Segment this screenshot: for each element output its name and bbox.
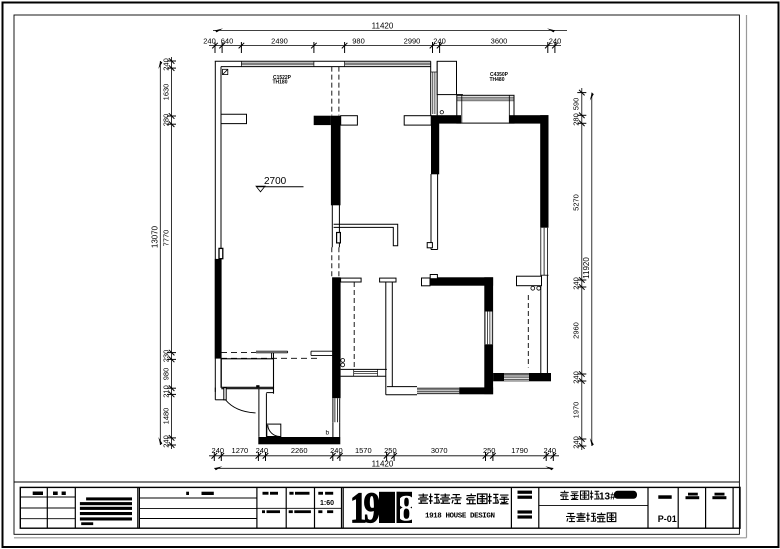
svg-text:7770: 7770 <box>162 230 171 247</box>
svg-text:240: 240 <box>544 446 557 455</box>
svg-text:13#: 13# <box>599 492 616 503</box>
svg-text:280: 280 <box>162 114 171 127</box>
svg-text:b: b <box>326 430 330 437</box>
svg-text:240: 240 <box>572 436 581 449</box>
svg-text:1970: 1970 <box>572 402 581 419</box>
svg-text:2960: 2960 <box>572 322 581 339</box>
svg-text:1480: 1480 <box>162 408 171 425</box>
svg-text:640: 640 <box>221 37 234 46</box>
svg-text:TH180: TH180 <box>272 80 287 86</box>
svg-text:240: 240 <box>549 37 562 46</box>
svg-text:980: 980 <box>352 37 365 46</box>
svg-text:2490: 2490 <box>271 37 288 46</box>
svg-text:19: 19 <box>350 485 379 532</box>
svg-text:240: 240 <box>203 37 216 46</box>
svg-text:1570: 1570 <box>355 446 372 455</box>
svg-text:TH480: TH480 <box>489 77 504 83</box>
svg-text:2990: 2990 <box>404 37 421 46</box>
svg-text:3600: 3600 <box>491 37 508 46</box>
svg-text:240: 240 <box>212 446 225 455</box>
svg-text:1630: 1630 <box>162 84 171 101</box>
svg-text:2260: 2260 <box>291 446 308 455</box>
svg-text:11420: 11420 <box>372 460 394 469</box>
svg-text:240: 240 <box>572 371 581 384</box>
svg-text:240: 240 <box>572 277 581 290</box>
svg-text:210: 210 <box>162 385 171 398</box>
svg-text:280: 280 <box>572 113 581 126</box>
svg-text:250: 250 <box>483 446 496 455</box>
svg-text:1:60: 1:60 <box>320 500 334 507</box>
svg-text:11420: 11420 <box>372 22 394 31</box>
svg-text:250: 250 <box>384 446 397 455</box>
svg-text:590: 590 <box>572 98 581 111</box>
svg-text:1918 HOUSE DESIGN: 1918 HOUSE DESIGN <box>425 513 495 521</box>
svg-text:P-01: P-01 <box>658 514 677 524</box>
svg-text:240: 240 <box>162 435 171 448</box>
svg-text:240: 240 <box>256 446 269 455</box>
svg-text:5270: 5270 <box>572 194 581 211</box>
svg-text:1790: 1790 <box>511 446 528 455</box>
svg-text:230: 230 <box>162 350 171 363</box>
svg-text:980: 980 <box>162 368 171 381</box>
svg-text:8: 8 <box>397 489 416 530</box>
svg-text:11920: 11920 <box>582 257 591 279</box>
svg-text:1270: 1270 <box>232 446 249 455</box>
svg-text:240: 240 <box>162 58 171 71</box>
svg-text:240: 240 <box>433 37 446 46</box>
svg-text:2700: 2700 <box>264 176 287 187</box>
svg-text:13070: 13070 <box>151 225 160 248</box>
svg-text:3070: 3070 <box>431 446 448 455</box>
svg-text:240: 240 <box>330 446 343 455</box>
